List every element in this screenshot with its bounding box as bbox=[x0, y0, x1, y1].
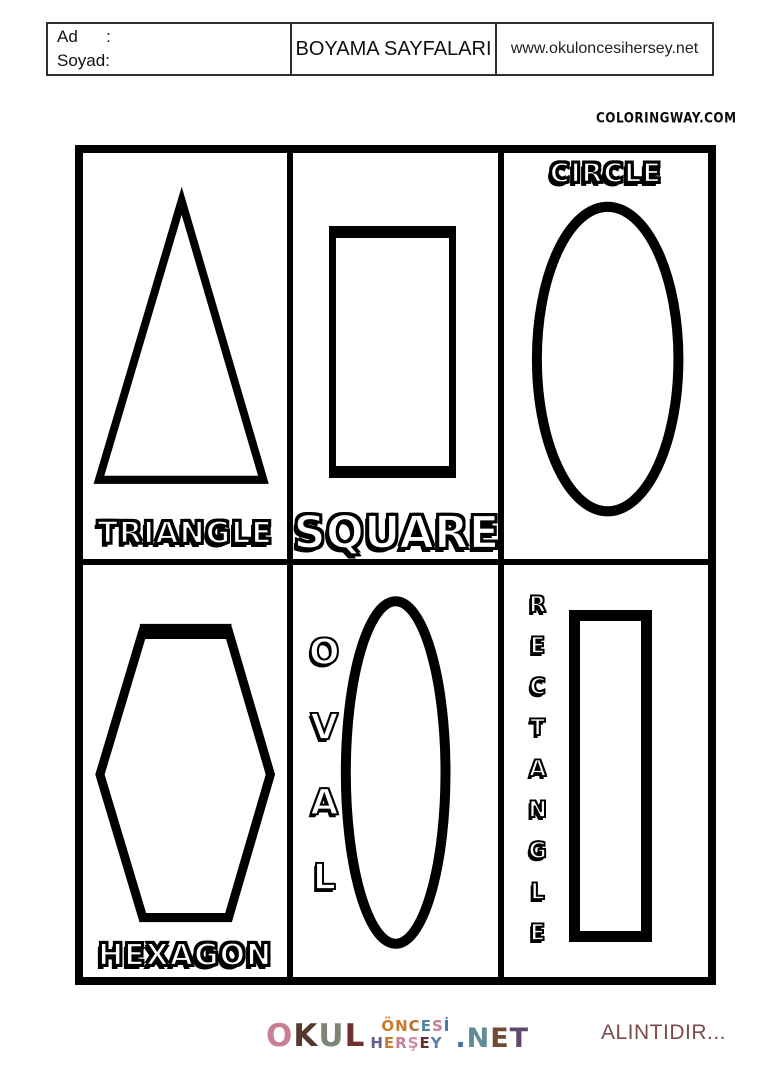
square-shape bbox=[329, 226, 456, 478]
page-title: BOYAMA SAYFALARI bbox=[292, 24, 497, 74]
logo-net: .NET bbox=[455, 1025, 529, 1052]
header-table: Ad : Soyad: BOYAMA SAYFALARI www.okulonc… bbox=[46, 22, 714, 76]
square-cell: SQUARE bbox=[290, 150, 500, 562]
vertical-letter: G bbox=[529, 831, 547, 872]
circle-shape bbox=[504, 153, 708, 559]
logo-oncesi: ÖNCESİ bbox=[381, 1018, 450, 1035]
hexagon-shape bbox=[83, 565, 287, 977]
logo-letter: R bbox=[395, 1035, 408, 1052]
logo-letter: E bbox=[421, 1018, 432, 1035]
logo-letter: S bbox=[432, 1018, 444, 1035]
attribution-text: ALINTIDIR... bbox=[601, 1021, 726, 1045]
rectangle-cell: RECTANGLE bbox=[501, 562, 711, 980]
okuloncesihersey-logo: OKUL ÖNCESİ HERŞEY .NET bbox=[266, 1006, 529, 1052]
logo-letter: Y bbox=[431, 1035, 443, 1052]
vertical-letter: A bbox=[529, 749, 546, 790]
vertical-letter: L bbox=[531, 872, 545, 913]
logo-letter: K bbox=[293, 1021, 318, 1052]
logo-letter: O bbox=[266, 1021, 293, 1052]
website-cell: www.okuloncesihersey.net bbox=[497, 24, 712, 74]
logo-letter: E bbox=[420, 1035, 431, 1052]
rectangle-label: RECTANGLE bbox=[516, 585, 560, 954]
vertical-letter: N bbox=[528, 790, 546, 831]
vertical-letter: T bbox=[530, 708, 545, 749]
logo-letter: . bbox=[455, 1025, 466, 1052]
circle-cell: CIRCLE bbox=[501, 150, 711, 562]
logo-middle: ÖNCESİ HERŞEY bbox=[370, 1018, 450, 1052]
logo-letter: İ bbox=[444, 1018, 451, 1035]
vertical-letter: E bbox=[530, 913, 545, 954]
worksheet-page: { "header": { "name_label": "Ad :", "sur… bbox=[0, 0, 760, 1076]
surname-label: Soyad: bbox=[57, 49, 290, 73]
logo-letter: L bbox=[345, 1021, 366, 1052]
oval-cell: OVAL bbox=[290, 562, 500, 980]
oval-shape bbox=[293, 565, 497, 977]
logo-okul: OKUL bbox=[266, 1021, 365, 1052]
shapes-grid: TRIANGLE SQUARE CIRCLE HEXAGON OVAL RECT… bbox=[75, 145, 716, 985]
logo-letter: C bbox=[409, 1018, 421, 1035]
logo-letter: E bbox=[490, 1025, 509, 1052]
logo-letter: Ş bbox=[408, 1035, 420, 1052]
logo-letter: H bbox=[370, 1035, 384, 1052]
logo-letter: U bbox=[318, 1021, 344, 1052]
vertical-letter: E bbox=[530, 626, 545, 667]
logo-letter: N bbox=[467, 1025, 491, 1052]
website-url: www.okuloncesihersey.net bbox=[511, 40, 698, 58]
logo-letter: T bbox=[510, 1025, 529, 1052]
name-fields-cell: Ad : Soyad: bbox=[48, 24, 292, 74]
square-label: SQUARE bbox=[293, 506, 497, 559]
triangle-label: TRIANGLE bbox=[83, 516, 287, 551]
triangle-shape bbox=[83, 153, 287, 559]
triangle-cell: TRIANGLE bbox=[80, 150, 290, 562]
hexagon-label: HEXAGON bbox=[83, 938, 287, 973]
logo-letter: Ö bbox=[381, 1018, 395, 1035]
logo-letter: E bbox=[384, 1035, 395, 1052]
logo-hersey: HERŞEY bbox=[370, 1035, 442, 1052]
hexagon-cell: HEXAGON bbox=[80, 562, 290, 980]
coloringway-watermark: COLORINGWAY.COM bbox=[596, 110, 718, 126]
vertical-letter: C bbox=[530, 667, 546, 708]
rectangle-shape bbox=[569, 610, 652, 942]
name-label: Ad : bbox=[57, 25, 290, 49]
vertical-letter: R bbox=[529, 585, 546, 626]
page-title-text: BOYAMA SAYFALARI bbox=[296, 38, 492, 61]
logo-letter: N bbox=[395, 1018, 409, 1035]
